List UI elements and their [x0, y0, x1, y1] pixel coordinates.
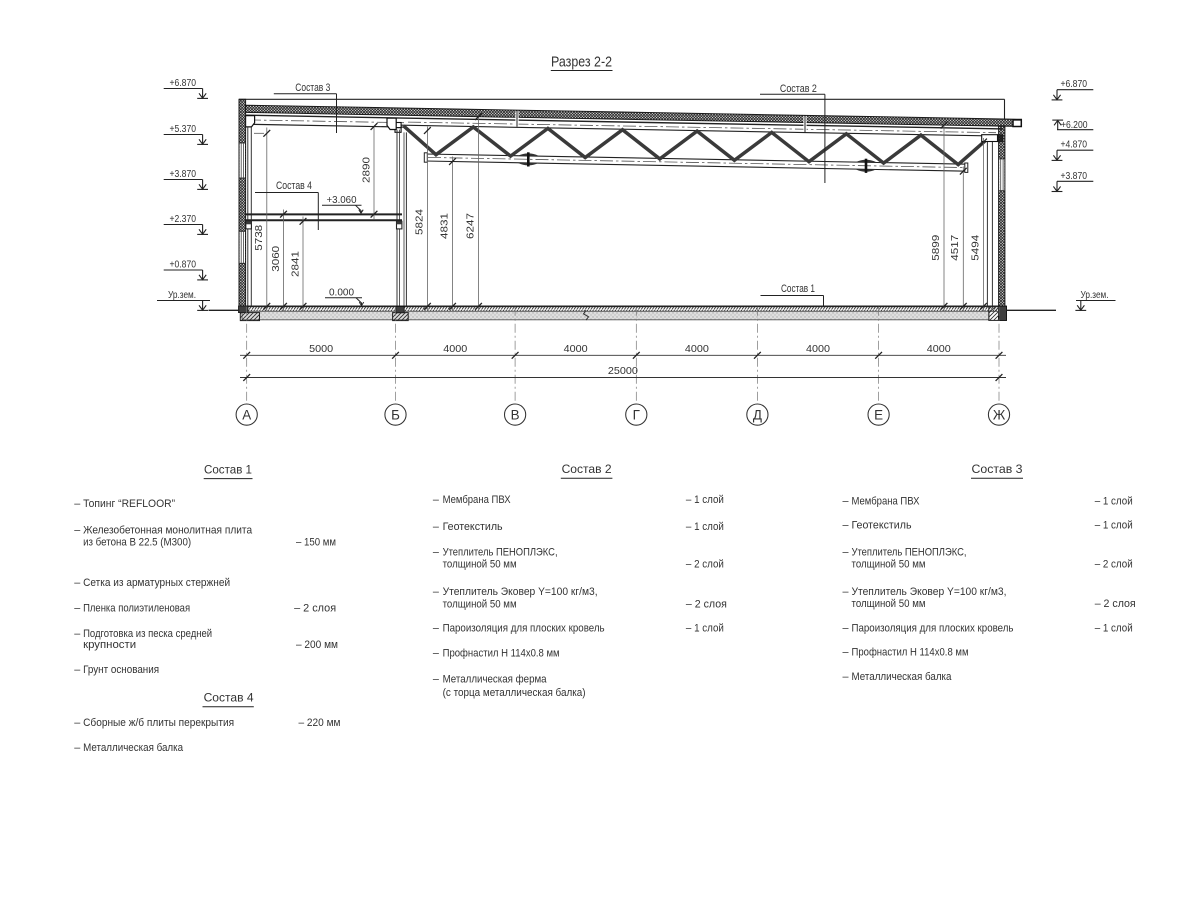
svg-text:+5.370: +5.370 — [170, 124, 197, 135]
svg-text:6247: 6247 — [465, 213, 476, 239]
svg-text:3060: 3060 — [271, 246, 282, 272]
svg-text:+4.870: +4.870 — [1061, 140, 1088, 151]
svg-text:– 220 мм: – 220 мм — [299, 717, 341, 729]
svg-text:Геотекстиль: Геотекстиль — [443, 521, 503, 533]
svg-text:Состав 1: Состав 1 — [204, 462, 252, 476]
svg-text:– 1 слой: – 1 слой — [1095, 520, 1133, 532]
svg-text:–: – — [74, 603, 80, 615]
svg-text:+3.870: +3.870 — [1061, 171, 1088, 182]
svg-text:– 1 слой: – 1 слой — [1095, 496, 1133, 508]
svg-text:–: – — [74, 525, 80, 537]
svg-text:– 2 слой: – 2 слой — [686, 559, 724, 571]
svg-text:– 2 слоя: – 2 слоя — [686, 599, 727, 611]
svg-text:+3.060: +3.060 — [327, 195, 357, 206]
svg-text:Состав 2: Состав 2 — [562, 462, 612, 476]
svg-text:Состав 3: Состав 3 — [295, 82, 330, 94]
svg-text:Разрез 2-2: Разрез 2-2 — [551, 55, 612, 71]
svg-text:Геотекстиль: Геотекстиль — [852, 520, 912, 532]
svg-text:–: – — [74, 664, 80, 676]
svg-text:4000: 4000 — [806, 344, 830, 355]
svg-text:Сетка из арматурных стержней: Сетка из арматурных стержней — [83, 577, 230, 589]
svg-text:+6.870: +6.870 — [170, 78, 197, 89]
svg-text:+0.870: +0.870 — [170, 260, 197, 271]
svg-text:Сборные ж/б плиты перекрытия: Сборные ж/б плиты перекрытия — [83, 717, 234, 729]
svg-text:толщиной 50 мм: толщиной 50 мм — [852, 559, 926, 571]
svg-text:–: – — [843, 647, 849, 659]
svg-text:Состав 2: Состав 2 — [780, 83, 817, 95]
svg-text:Топинг “REFLOOR”: Топинг “REFLOOR” — [83, 498, 175, 510]
svg-text:–: – — [433, 623, 439, 635]
svg-text:+2.370: +2.370 — [170, 214, 197, 225]
svg-text:Утеплитель ПЕНОПЛЭКС,: Утеплитель ПЕНОПЛЭКС, — [443, 547, 558, 559]
svg-text:5899: 5899 — [931, 234, 942, 260]
svg-text:–: – — [843, 671, 849, 683]
svg-text:–: – — [74, 498, 80, 510]
svg-text:–: – — [433, 521, 439, 533]
svg-text:+3.870: +3.870 — [170, 169, 197, 180]
svg-text:Пароизоляция для плоских крове: Пароизоляция для плоских кровель — [443, 623, 605, 635]
svg-text:25000: 25000 — [608, 366, 638, 377]
svg-text:4831: 4831 — [439, 213, 450, 239]
svg-text:– 2 слоя: – 2 слоя — [294, 603, 336, 615]
svg-text:А: А — [242, 407, 251, 422]
svg-text:5494: 5494 — [970, 234, 981, 260]
svg-text:В: В — [511, 407, 520, 422]
svg-text:– 1 слой: – 1 слой — [686, 623, 724, 635]
svg-text:2890: 2890 — [361, 157, 372, 183]
svg-text:–: – — [843, 623, 849, 635]
svg-text:Состав 3: Состав 3 — [972, 462, 1023, 476]
svg-text:толщиной 50 мм: толщиной 50 мм — [443, 559, 517, 571]
svg-text:– 2 слоя: – 2 слоя — [1095, 598, 1136, 610]
svg-text:из бетона В 22.5 (М300): из бетона В 22.5 (М300) — [83, 537, 191, 549]
svg-text:4000: 4000 — [927, 344, 951, 355]
svg-text:Е: Е — [874, 407, 883, 422]
svg-text:–: – — [74, 577, 80, 589]
svg-text:Состав 4: Состав 4 — [204, 691, 254, 705]
svg-text:0.000: 0.000 — [329, 287, 355, 298]
svg-text:4517: 4517 — [950, 234, 961, 260]
svg-text:Д: Д — [753, 407, 762, 422]
svg-text:Металлическая балка: Металлическая балка — [852, 671, 952, 683]
svg-text:– 1 слой: – 1 слой — [686, 521, 724, 533]
svg-text:Мембрана ПВХ: Мембрана ПВХ — [443, 494, 511, 506]
svg-text:Б: Б — [391, 407, 400, 422]
svg-text:Металлическая ферма: Металлическая ферма — [443, 674, 547, 686]
svg-text:5824: 5824 — [414, 209, 425, 235]
svg-text:Металлическая балка: Металлическая балка — [83, 742, 183, 754]
svg-text:Состав 1: Состав 1 — [781, 283, 815, 295]
svg-text:4000: 4000 — [564, 344, 588, 355]
svg-text:4000: 4000 — [685, 344, 709, 355]
svg-text:Состав 4: Состав 4 — [276, 180, 312, 192]
svg-text:Утеплитель Эковер Y=100 кг/м3,: Утеплитель Эковер Y=100 кг/м3, — [852, 586, 1007, 598]
svg-text:4000: 4000 — [443, 344, 467, 355]
svg-text:Железобетонная монолитная пли: Железобетонная монолитная плита — [83, 525, 252, 537]
svg-text:Пленка полиэтиленовая: Пленка полиэтиленовая — [83, 603, 190, 615]
svg-text:+6.870: +6.870 — [1061, 79, 1088, 90]
svg-text:крупности: крупности — [83, 639, 136, 651]
svg-text:–: – — [433, 674, 439, 686]
svg-text:Профнастил Н 114х0.8 мм: Профнастил Н 114х0.8 мм — [443, 648, 560, 660]
svg-text:–: – — [433, 547, 439, 559]
svg-text:Ж: Ж — [993, 407, 1006, 422]
svg-text:Утеплитель Эковер Y=100 кг/м3,: Утеплитель Эковер Y=100 кг/м3, — [443, 586, 598, 598]
svg-text:Профнастил Н 114х0.8 мм: Профнастил Н 114х0.8 мм — [852, 647, 969, 659]
svg-text:Ур.зем.: Ур.зем. — [1081, 290, 1109, 301]
svg-text:– 1 слой: – 1 слой — [1095, 623, 1133, 635]
svg-text:–: – — [433, 648, 439, 660]
svg-text:–: – — [843, 547, 849, 559]
svg-text:–: – — [74, 717, 80, 729]
svg-text:–: – — [433, 586, 439, 598]
svg-text:– 200 мм: – 200 мм — [296, 639, 338, 651]
svg-text:– 2 слой: – 2 слой — [1095, 559, 1133, 571]
svg-text:Мембрана ПВХ: Мембрана ПВХ — [852, 496, 920, 508]
svg-text:– 150 мм: – 150 мм — [296, 537, 336, 549]
svg-text:–: – — [843, 496, 849, 508]
svg-text:–: – — [843, 520, 849, 532]
svg-text:–: – — [843, 586, 849, 598]
svg-text:–: – — [74, 628, 80, 640]
svg-text:–: – — [74, 742, 80, 754]
svg-text:Пароизоляция для плоских крове: Пароизоляция для плоских кровель — [852, 623, 1014, 635]
svg-text:(с торца металлическая балка): (с торца металлическая балка) — [443, 687, 586, 699]
svg-text:2841: 2841 — [291, 251, 302, 277]
svg-text:–: – — [433, 494, 439, 506]
svg-text:Утеплитель ПЕНОПЛЭКС,: Утеплитель ПЕНОПЛЭКС, — [852, 547, 967, 559]
svg-text:5000: 5000 — [309, 344, 333, 355]
svg-text:– 1 слой: – 1 слой — [686, 494, 724, 506]
svg-text:Грунт основания: Грунт основания — [83, 664, 159, 676]
svg-text:толщиной 50 мм: толщиной 50 мм — [852, 598, 926, 610]
svg-text:5738: 5738 — [254, 225, 265, 251]
svg-text:Г: Г — [633, 407, 640, 422]
svg-text:толщиной 50 мм: толщиной 50 мм — [443, 599, 517, 611]
svg-text:Ур.зем.: Ур.зем. — [168, 290, 196, 301]
